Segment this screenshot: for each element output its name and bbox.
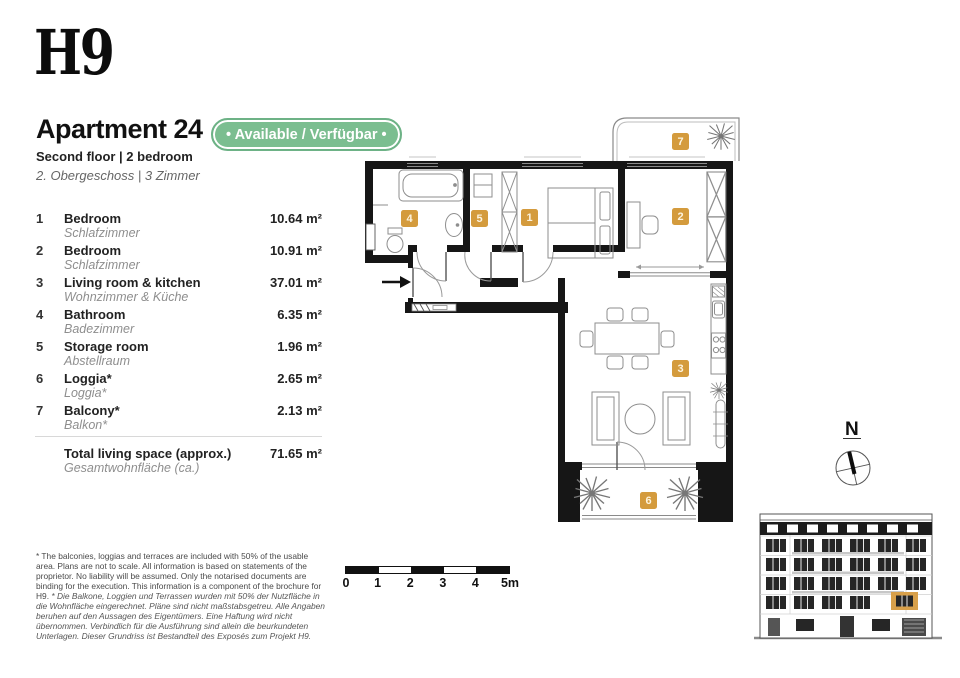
- room-row-6: 6 Loggia*Loggia* 2.65 m²: [36, 371, 322, 400]
- scale-bar: 0 1 2 3 4 5m: [345, 560, 530, 590]
- total-label-en: Total living space (approx.): [64, 446, 270, 461]
- apartment-location-highlight: [891, 592, 918, 610]
- brand-logo: H9: [34, 22, 112, 84]
- kitchen-plant-icon: [710, 382, 728, 399]
- room-number: 2: [36, 243, 64, 258]
- room-area: 6.35 m²: [277, 307, 322, 322]
- storage-shelf: [474, 174, 492, 197]
- sofa-icon: [592, 392, 690, 445]
- room-area: 37.01 m²: [270, 275, 322, 290]
- room-row-5: 5 Storage roomAbstellraum 1.96 m²: [36, 339, 322, 368]
- window-swing-arrow: [636, 265, 704, 270]
- plan-room-label-2: 2: [672, 208, 689, 225]
- floor-plan-drawing: [355, 105, 745, 530]
- disclaimer-german: * Die Balkone, Loggien und Terrassen wur…: [36, 591, 325, 641]
- subtitle-german: 2. Obergeschoss | 3 Zimmer: [36, 168, 200, 183]
- room-number: 6: [36, 371, 64, 386]
- entrance-arrow-icon: [382, 276, 411, 288]
- room-row-2: 2 BedroomSchlafzimmer 10.91 m²: [36, 243, 322, 272]
- total-label-de: Gesamtwohnfläche (ca.): [64, 461, 270, 475]
- entry-mat: [412, 304, 456, 311]
- plan-room-label-6: 6: [640, 492, 657, 509]
- room-name-de: Abstellraum: [64, 354, 277, 368]
- building-elevation: [754, 506, 942, 646]
- room-row-4: 4 BathroomBadezimmer 6.35 m²: [36, 307, 322, 336]
- wardrobe-icon: [707, 172, 726, 217]
- scale-tick: 3: [439, 576, 446, 590]
- doors: [413, 252, 645, 470]
- room-number: 7: [36, 403, 64, 418]
- plan-room-label-7: 7: [672, 133, 689, 150]
- room-name-de: Schlafzimmer: [64, 258, 270, 272]
- room-name-en: Bedroom: [64, 211, 270, 226]
- disclaimer-text: * The balconies, loggias and terraces ar…: [36, 552, 326, 641]
- room-name-de: Loggia*: [64, 386, 277, 400]
- desk-icon: [627, 202, 658, 248]
- room-area: 2.13 m²: [277, 403, 322, 418]
- room-name-en: Bedroom: [64, 243, 270, 258]
- room-name-de: Wohnzimmer & Küche: [64, 290, 270, 304]
- attic-band: [760, 522, 932, 535]
- room-name-de: Balkon*: [64, 418, 277, 432]
- room-number: 4: [36, 307, 64, 322]
- plan-room-label-3: 3: [672, 360, 689, 377]
- scale-tick: 5m: [501, 576, 519, 590]
- room-row-3: 3 Living room & kitchenWohnzimmer & Küch…: [36, 275, 322, 304]
- room-area: 2.65 m²: [277, 371, 322, 386]
- room-name-en: Bathroom: [64, 307, 277, 322]
- room-row-1: 1 BedroomSchlafzimmer 10.64 m²: [36, 211, 322, 240]
- total-living-space: Total living space (approx.)Gesamtwohnfl…: [36, 446, 322, 475]
- room-number: 5: [36, 339, 64, 354]
- room-area: 10.64 m²: [270, 211, 322, 226]
- plan-room-label-4: 4: [401, 210, 418, 227]
- room-name-en: Balcony*: [64, 403, 277, 418]
- room-number: 1: [36, 211, 64, 226]
- wardrobe-icon: [502, 172, 517, 212]
- scale-tick: 2: [407, 576, 414, 590]
- scale-tick: 4: [472, 576, 479, 590]
- room-name-en: Storage room: [64, 339, 277, 354]
- loggia-plant-icon: [667, 477, 703, 512]
- room-list: 1 BedroomSchlafzimmer 10.64 m² 2 Bedroom…: [36, 211, 322, 435]
- balcony-plant-icon: [707, 123, 735, 149]
- coffee-table-icon: [625, 404, 655, 434]
- scale-bar-segments: [345, 566, 510, 574]
- north-compass: N: [820, 408, 886, 498]
- scale-tick: 1: [374, 576, 381, 590]
- room-name-en: Loggia*: [64, 371, 277, 386]
- room-name-de: Badezimmer: [64, 322, 277, 336]
- compass-needle: [849, 452, 854, 474]
- plan-room-label-5: 5: [471, 210, 488, 227]
- list-divider: [35, 436, 322, 437]
- page-title: Apartment 24: [36, 114, 203, 145]
- sink-icon: [446, 214, 463, 237]
- scale-tick: 0: [343, 576, 350, 590]
- room-area: 1.96 m²: [277, 339, 322, 354]
- compass-north-label: N: [845, 419, 859, 440]
- room-number: 3: [36, 275, 64, 290]
- floorplan-brochure-page: H9 Apartment 24 • Available / Verfügbar …: [0, 0, 960, 678]
- plan-room-label-1: 1: [521, 209, 538, 226]
- toilet-icon: [388, 228, 402, 234]
- subtitle-english: Second floor | 2 bedroom: [36, 149, 193, 164]
- room-name-de: Schlafzimmer: [64, 226, 270, 240]
- chair-icon: [642, 216, 658, 234]
- shaft: [366, 224, 375, 250]
- total-value: 71.65 m²: [270, 446, 322, 461]
- wardrobe-icon: [707, 217, 726, 262]
- floor-plan: 1 2 3 4 5 6 7: [355, 105, 745, 530]
- kitchen-icons: [711, 284, 728, 448]
- dining-table-icon: [580, 308, 674, 369]
- room-area: 10.91 m²: [270, 243, 322, 258]
- room-row-7: 7 Balcony*Balkon* 2.13 m²: [36, 403, 322, 432]
- room-name-en: Living room & kitchen: [64, 275, 270, 290]
